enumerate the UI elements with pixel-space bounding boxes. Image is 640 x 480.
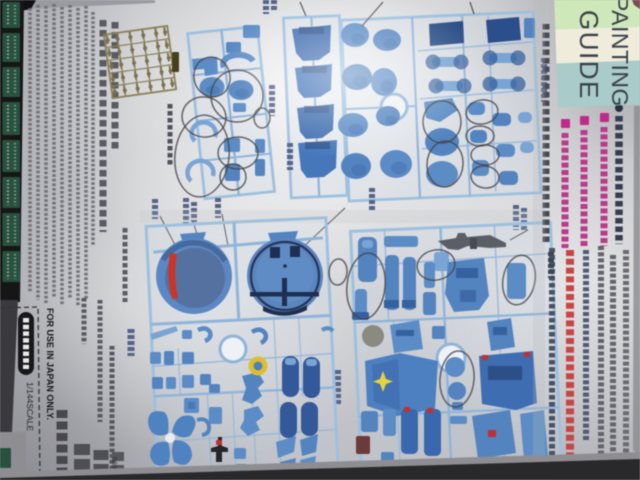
svg-text:GUIDE: GUIDE	[574, 10, 604, 100]
svg-text:PAINTING: PAINTING	[607, 0, 633, 107]
svg-text:FOR USE IN JAPAN ONLY.: FOR USE IN JAPAN ONLY.	[45, 308, 55, 420]
svg-text:1/144SCALE: 1/144SCALE	[25, 382, 35, 431]
